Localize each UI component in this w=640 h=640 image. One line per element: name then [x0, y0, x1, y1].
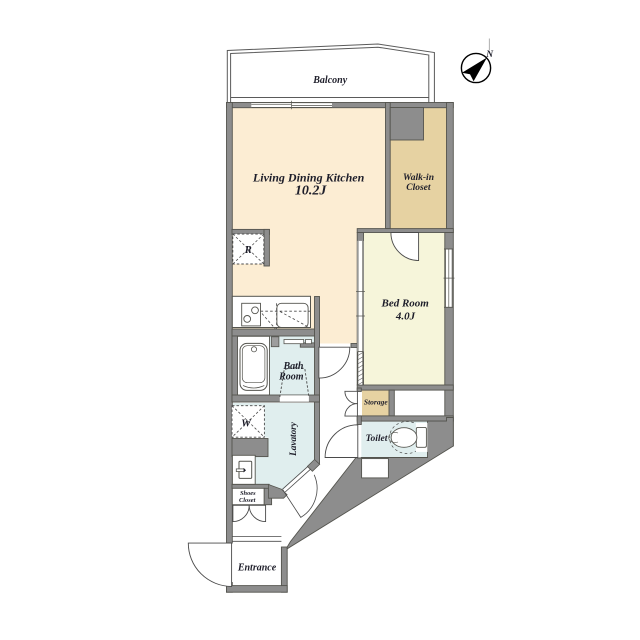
- svg-text:Storage: Storage: [364, 398, 388, 407]
- svg-text:N: N: [485, 50, 494, 60]
- svg-text:Bed Room: Bed Room: [381, 297, 430, 309]
- svg-text:Lavatory: Lavatory: [288, 421, 298, 457]
- svg-text:Entrance: Entrance: [237, 562, 277, 573]
- svg-text:Room: Room: [278, 371, 304, 382]
- svg-text:4.0J: 4.0J: [395, 311, 416, 323]
- svg-text:Closet: Closet: [406, 183, 431, 193]
- svg-text:Living Dining Kitchen: Living Dining Kitchen: [252, 170, 365, 184]
- svg-text:Balcony: Balcony: [312, 75, 347, 86]
- svg-text:10.2J: 10.2J: [295, 183, 328, 198]
- svg-text:Closet: Closet: [239, 497, 256, 504]
- svg-text:Walk-in: Walk-in: [403, 173, 434, 183]
- svg-text:Toilet: Toilet: [366, 434, 388, 444]
- svg-text:W: W: [241, 417, 252, 429]
- svg-text:R: R: [244, 245, 252, 256]
